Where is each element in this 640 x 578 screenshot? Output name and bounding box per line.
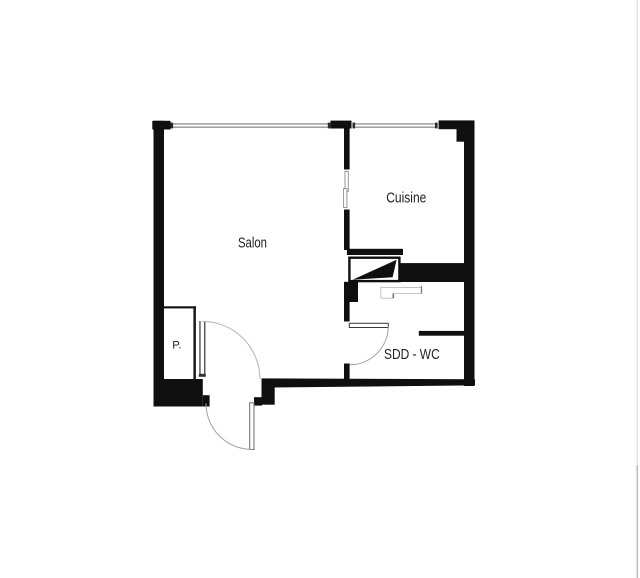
svg-text:Salon: Salon [238,236,267,252]
svg-text:Cuisine: Cuisine [386,191,426,207]
svg-text:SDD - WC: SDD - WC [384,347,440,363]
svg-text:P.: P. [172,340,181,352]
